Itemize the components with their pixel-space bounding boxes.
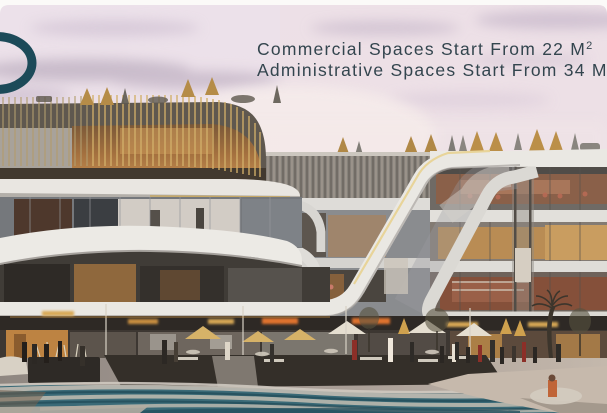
svg-text:Administrative Spaces Start Fr: Administrative Spaces Start From 34 M <box>257 60 607 80</box>
svg-text:Commercial Spaces Start From 2: Commercial Spaces Start From 22 M2 <box>257 39 593 59</box>
